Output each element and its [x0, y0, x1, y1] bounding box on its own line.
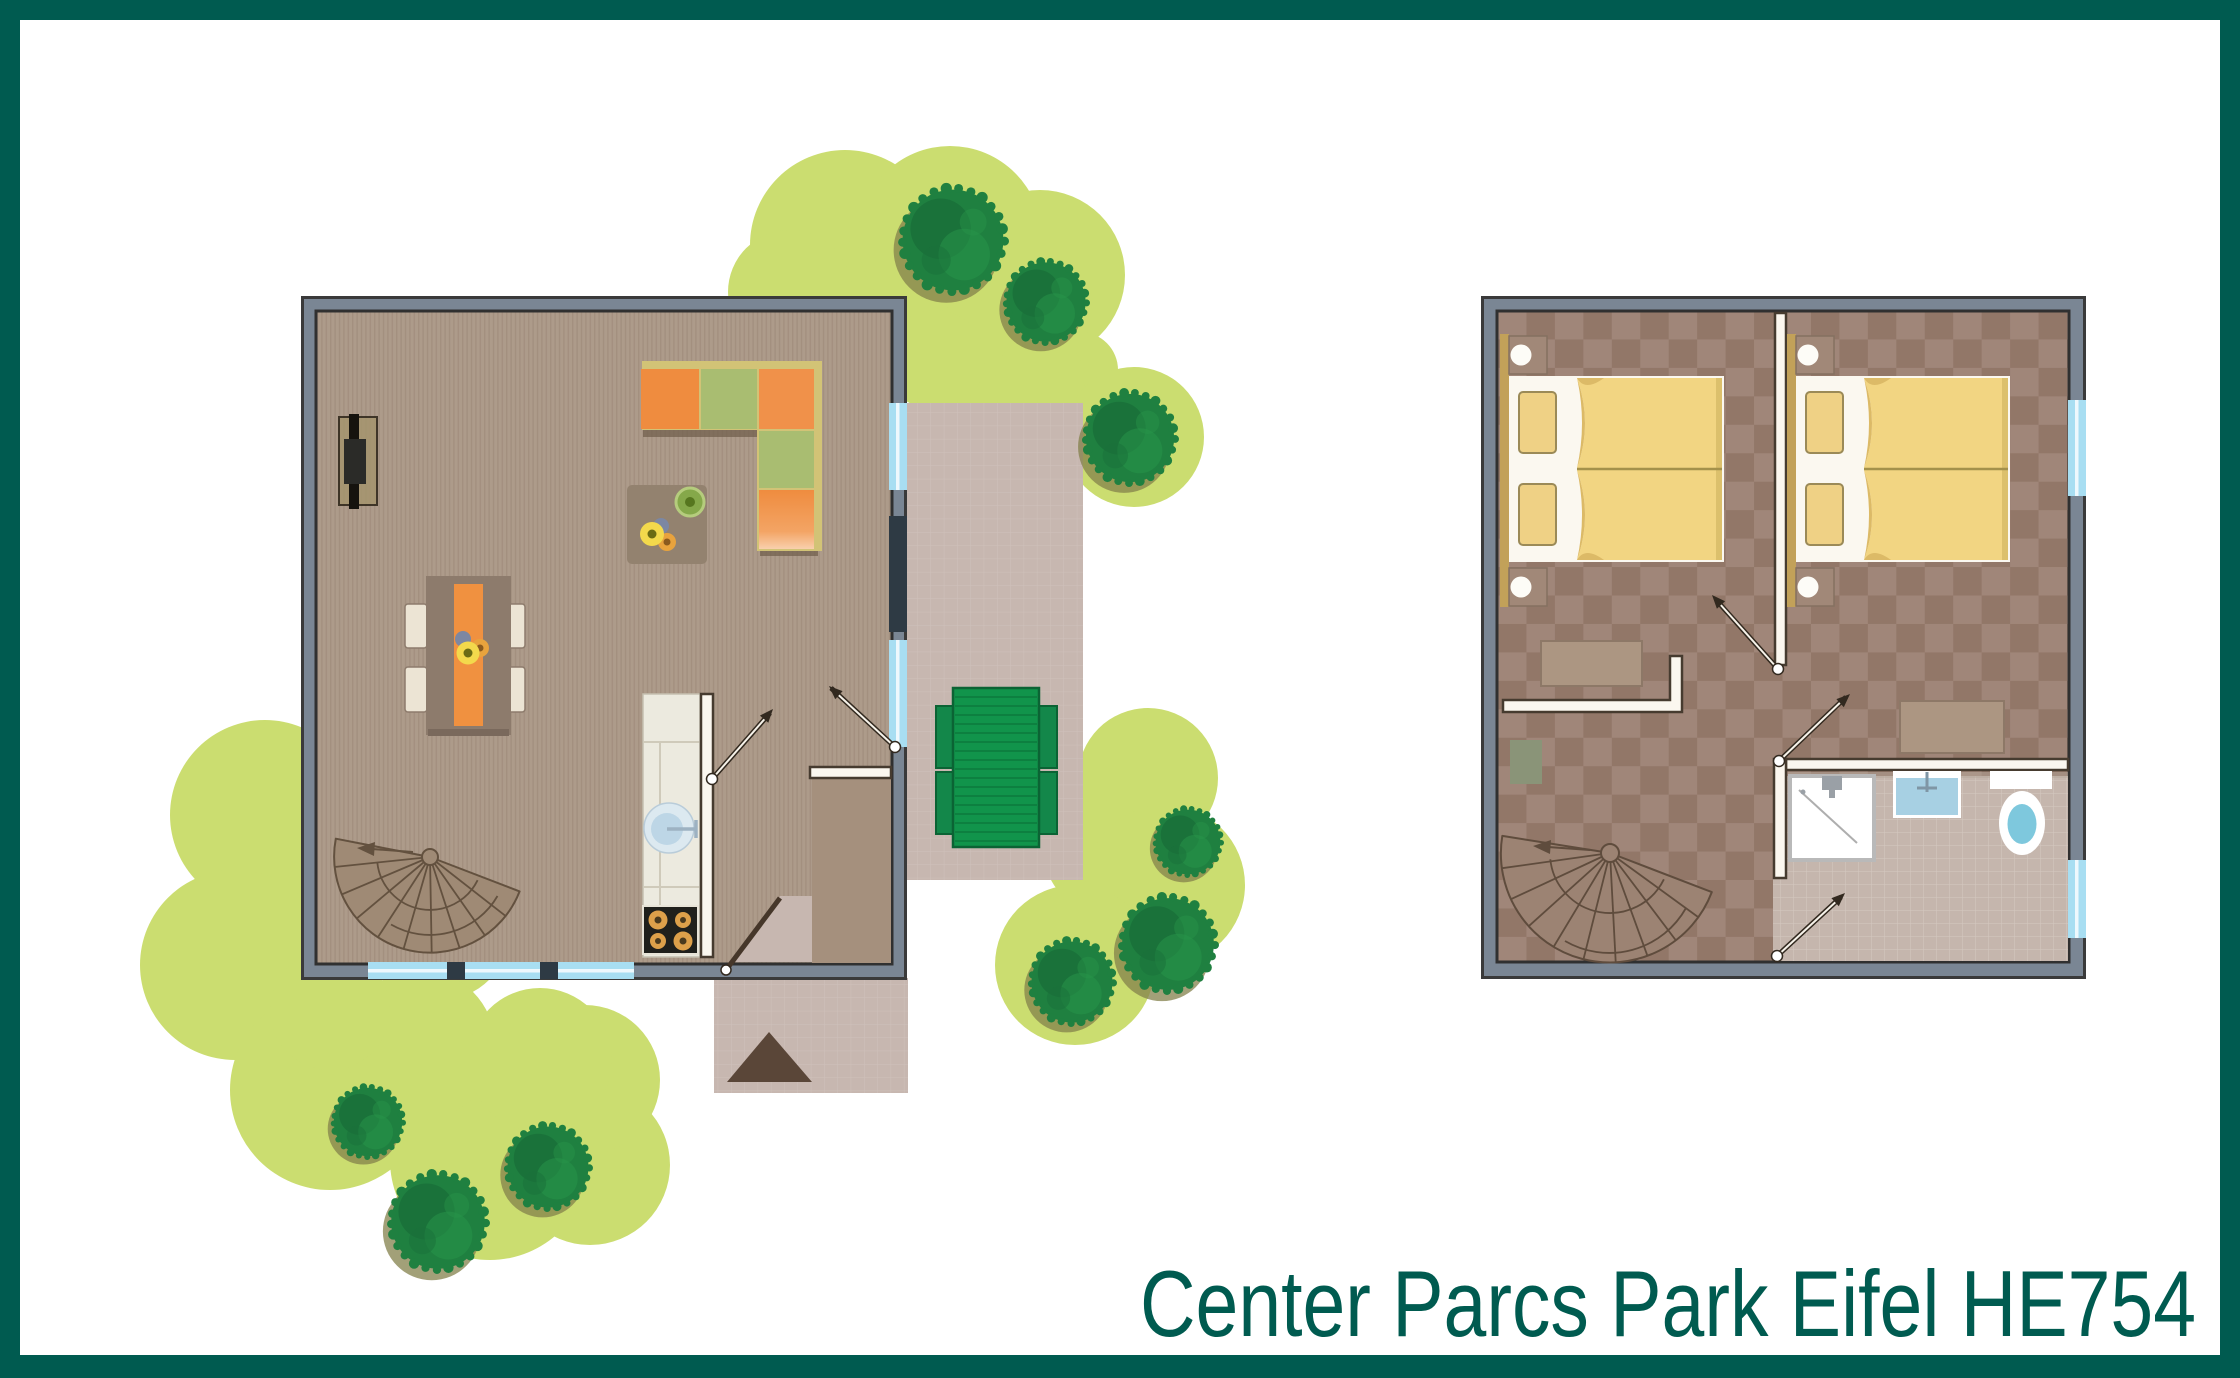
svg-text:Center Parcs Park Eifel HE754: Center Parcs Park Eifel HE754 [1140, 1251, 2196, 1356]
